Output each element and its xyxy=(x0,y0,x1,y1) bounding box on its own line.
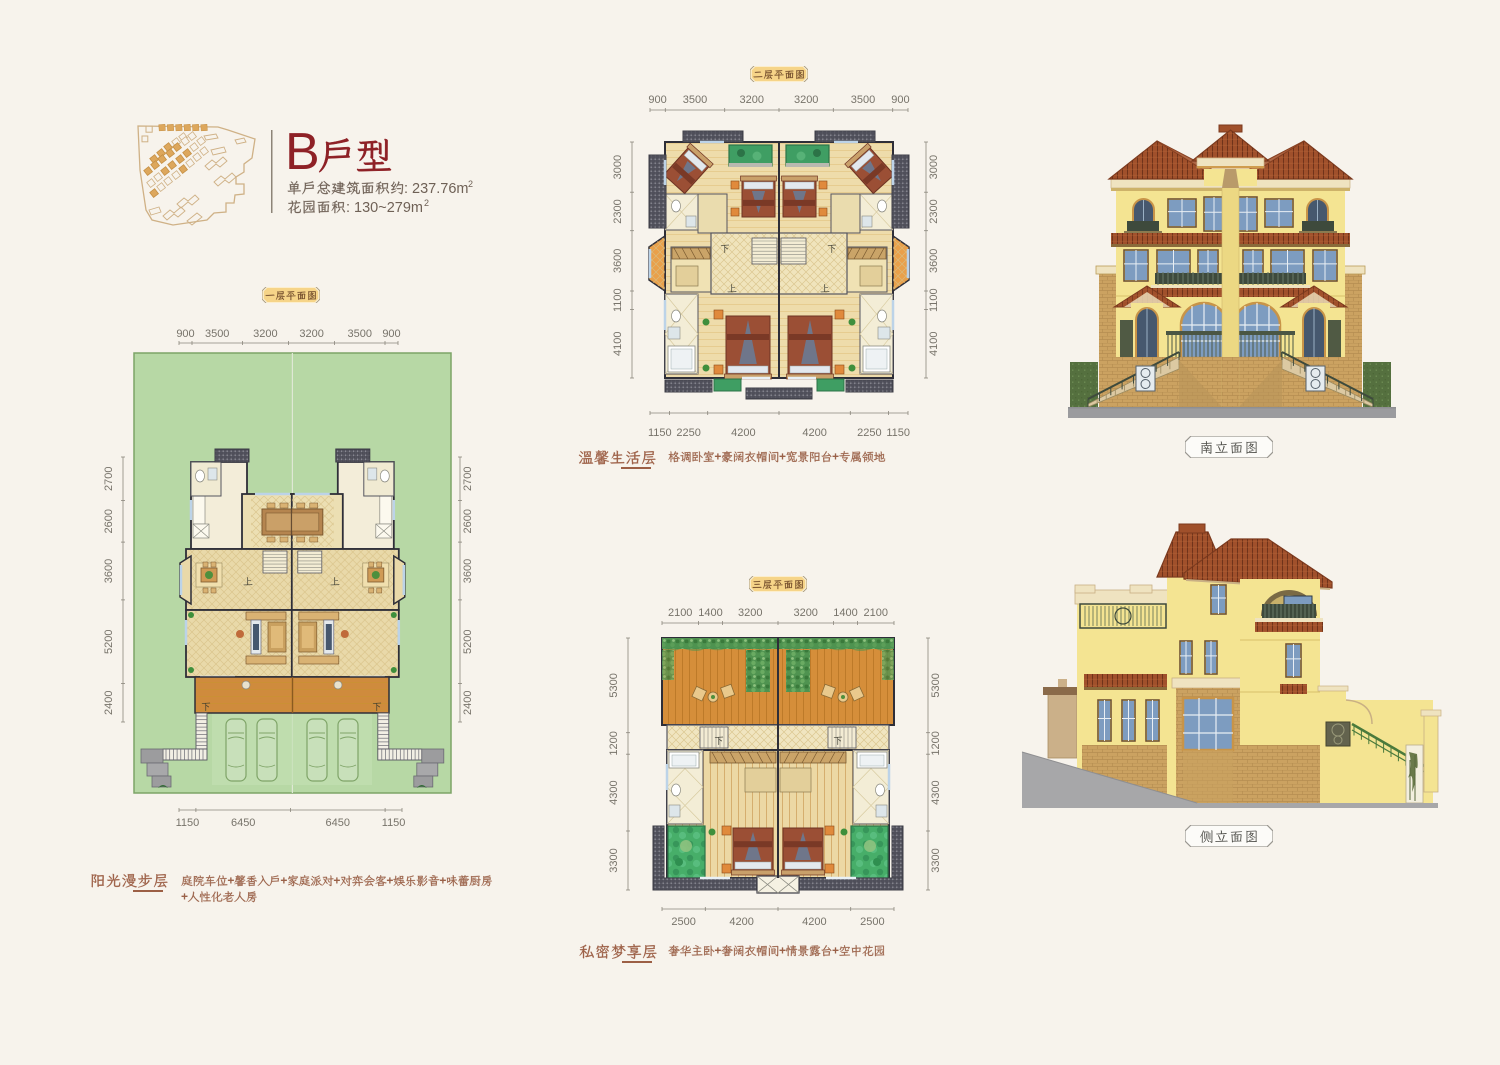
svg-text:2300: 2300 xyxy=(612,199,624,223)
svg-text:900: 900 xyxy=(891,94,909,106)
svg-text:6450: 6450 xyxy=(231,817,255,829)
svg-text:: 130~279m: : 130~279m xyxy=(346,200,423,216)
svg-text:+: + xyxy=(714,450,721,464)
svg-text:3500: 3500 xyxy=(683,94,707,106)
svg-text:3200: 3200 xyxy=(253,328,277,340)
svg-text:5300: 5300 xyxy=(608,673,620,697)
svg-text:4200: 4200 xyxy=(731,427,755,439)
svg-text:2: 2 xyxy=(424,198,429,208)
svg-text:5300: 5300 xyxy=(930,673,942,697)
svg-text:3200: 3200 xyxy=(793,607,817,619)
svg-text:900: 900 xyxy=(176,328,194,340)
svg-text:2600: 2600 xyxy=(462,509,474,533)
svg-text:3500: 3500 xyxy=(348,328,372,340)
svg-text:+: + xyxy=(333,874,340,888)
svg-text:+: + xyxy=(832,944,839,958)
svg-text:1400: 1400 xyxy=(833,607,857,619)
svg-text:5200: 5200 xyxy=(103,629,115,653)
svg-text:1150: 1150 xyxy=(886,427,910,439)
svg-text:1150: 1150 xyxy=(648,427,672,439)
svg-text:4300: 4300 xyxy=(608,780,620,804)
svg-text:+: + xyxy=(779,944,786,958)
svg-text:2700: 2700 xyxy=(462,466,474,490)
svg-text:4200: 4200 xyxy=(729,916,753,928)
svg-text:4200: 4200 xyxy=(802,427,826,439)
svg-text:: 237.76m: : 237.76m xyxy=(404,181,469,197)
svg-text:2250: 2250 xyxy=(676,427,700,439)
svg-text:3600: 3600 xyxy=(462,559,474,583)
svg-text:2500: 2500 xyxy=(860,916,884,928)
svg-text:6450: 6450 xyxy=(326,817,350,829)
svg-text:1200: 1200 xyxy=(608,731,620,755)
svg-text:+: + xyxy=(714,944,721,958)
svg-text:2250: 2250 xyxy=(857,427,881,439)
svg-text:+: + xyxy=(779,450,786,464)
svg-text:4200: 4200 xyxy=(802,916,826,928)
svg-text:3500: 3500 xyxy=(851,94,875,106)
svg-text:2100: 2100 xyxy=(668,607,692,619)
svg-text:3200: 3200 xyxy=(738,607,762,619)
svg-text:3000: 3000 xyxy=(928,155,940,179)
svg-text:2700: 2700 xyxy=(103,466,115,490)
svg-text:+: + xyxy=(439,874,446,888)
svg-text:1100: 1100 xyxy=(928,288,940,312)
svg-text:1150: 1150 xyxy=(382,817,406,829)
svg-text:+: + xyxy=(227,874,234,888)
svg-text:5200: 5200 xyxy=(462,629,474,653)
svg-text:3500: 3500 xyxy=(205,328,229,340)
svg-text:B: B xyxy=(285,123,320,181)
svg-text:3300: 3300 xyxy=(930,848,942,872)
svg-text:3300: 3300 xyxy=(608,848,620,872)
svg-text:3000: 3000 xyxy=(612,155,624,179)
svg-text:3600: 3600 xyxy=(928,249,940,273)
svg-text:+: + xyxy=(832,450,839,464)
svg-text:+: + xyxy=(386,874,393,888)
svg-text:2600: 2600 xyxy=(103,509,115,533)
svg-text:3200: 3200 xyxy=(299,328,323,340)
svg-text:2400: 2400 xyxy=(103,690,115,714)
svg-text:+: + xyxy=(181,890,188,904)
svg-text:3600: 3600 xyxy=(103,559,115,583)
svg-text:4100: 4100 xyxy=(928,331,940,355)
svg-text:4300: 4300 xyxy=(930,780,942,804)
svg-text:1150: 1150 xyxy=(176,817,200,829)
svg-text:900: 900 xyxy=(382,328,400,340)
svg-text:3200: 3200 xyxy=(740,94,764,106)
svg-text:900: 900 xyxy=(648,94,666,106)
svg-text:1100: 1100 xyxy=(612,288,624,312)
svg-text:+: + xyxy=(280,874,287,888)
svg-text:2300: 2300 xyxy=(928,199,940,223)
svg-text:2100: 2100 xyxy=(864,607,888,619)
svg-text:2400: 2400 xyxy=(462,690,474,714)
svg-text:3600: 3600 xyxy=(612,249,624,273)
svg-text:3200: 3200 xyxy=(794,94,818,106)
svg-text:2500: 2500 xyxy=(671,916,695,928)
svg-text:1400: 1400 xyxy=(698,607,722,619)
svg-text:1200: 1200 xyxy=(930,731,942,755)
svg-text:4100: 4100 xyxy=(612,331,624,355)
svg-text:2: 2 xyxy=(468,179,473,189)
